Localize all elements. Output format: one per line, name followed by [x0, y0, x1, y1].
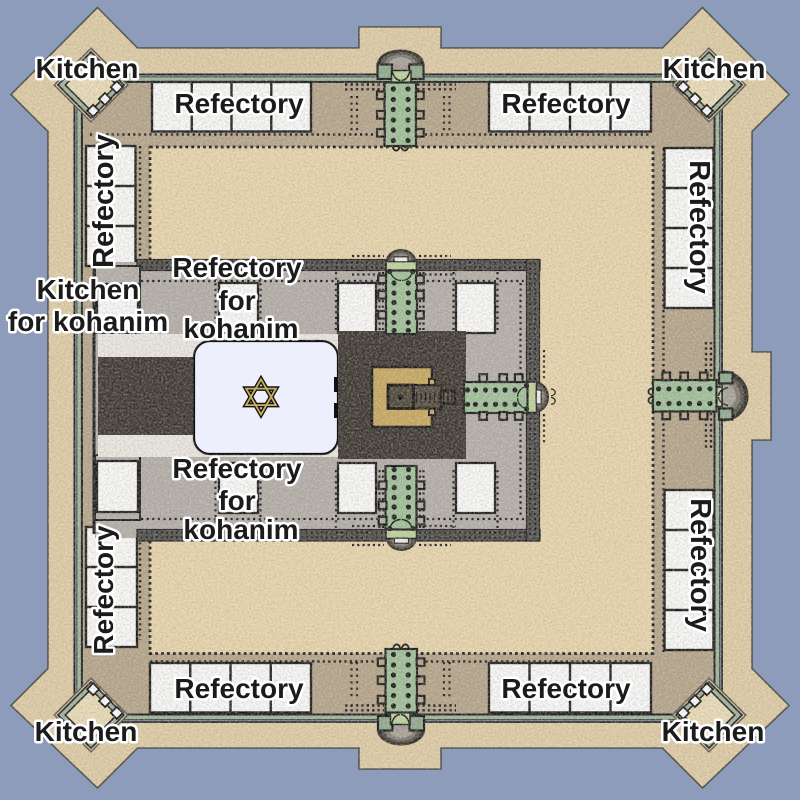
svg-text:kohanim: kohanim — [183, 313, 298, 344]
svg-text:kohanim: kohanim — [183, 514, 298, 545]
svg-text:Kitchen: Kitchen — [37, 274, 140, 305]
svg-text:Refectory: Refectory — [88, 134, 120, 268]
svg-text:Refectory: Refectory — [174, 88, 304, 119]
svg-text:Refectory: Refectory — [174, 673, 304, 704]
svg-text:Kitchen: Kitchen — [663, 53, 766, 84]
svg-text:Kitchen: Kitchen — [35, 716, 138, 747]
svg-text:for kohanim: for kohanim — [8, 306, 168, 337]
svg-text:Refectory: Refectory — [88, 525, 119, 655]
svg-text:for: for — [218, 285, 255, 316]
svg-text:Refectory: Refectory — [501, 673, 631, 704]
svg-text:Refectory: Refectory — [172, 453, 302, 484]
svg-text:Refectory: Refectory — [172, 252, 302, 283]
svg-text:Kitchen: Kitchen — [36, 53, 139, 84]
svg-text:Refectory: Refectory — [501, 88, 631, 119]
svg-text:Refectory: Refectory — [684, 498, 716, 632]
svg-text:Kitchen: Kitchen — [662, 716, 765, 747]
svg-text:Refectory: Refectory — [683, 160, 715, 294]
svg-text:for: for — [218, 485, 255, 516]
